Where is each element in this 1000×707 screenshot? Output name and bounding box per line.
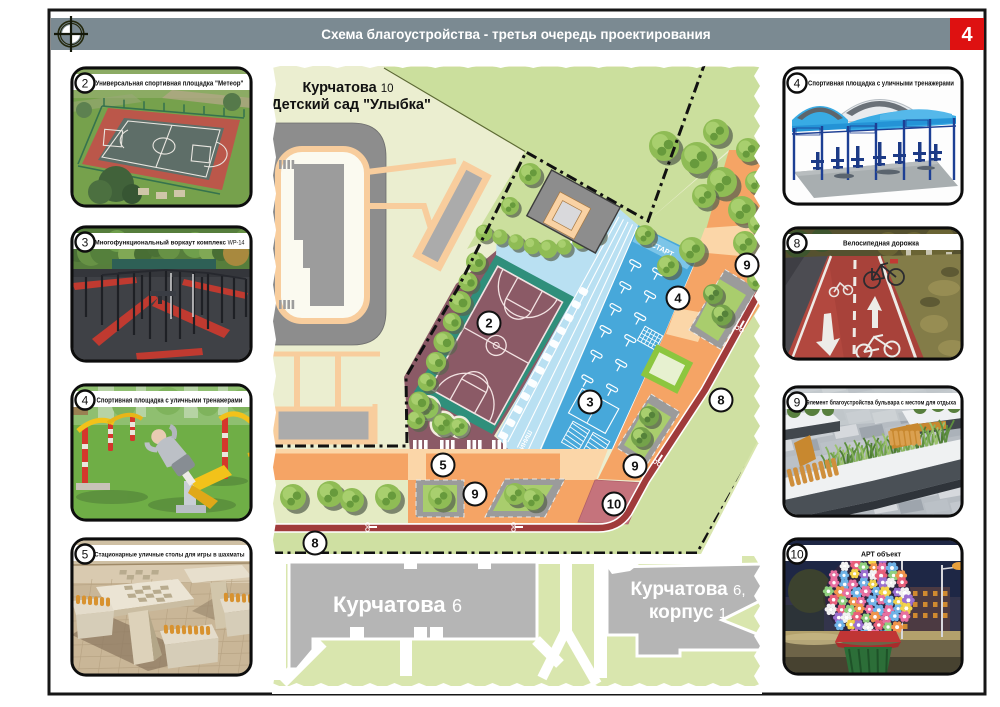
svg-text:4: 4 (794, 77, 801, 91)
svg-text:6: 6 (452, 596, 462, 616)
svg-text:Элемент благоустройства бульва: Элемент благоустройства бульвара с место… (806, 399, 956, 407)
svg-text:3: 3 (82, 236, 89, 250)
svg-text:Курчатова 10: Курчатова 10 (302, 80, 393, 96)
svg-text:4: 4 (82, 394, 89, 408)
svg-text:Курчатова 6,: Курчатова 6, (630, 579, 745, 600)
svg-text:9: 9 (794, 396, 801, 410)
svg-text:9: 9 (471, 487, 478, 502)
svg-text:АРТ объект: АРТ объект (861, 550, 901, 559)
svg-text:корпус 1: корпус 1 (649, 602, 727, 623)
svg-text:Спортивная площадка с уличными: Спортивная площадка с уличными тренажера… (808, 81, 954, 88)
svg-text:Универсальная спортивная площа: Универсальная спортивная площадка "Метео… (96, 81, 244, 88)
svg-text:2: 2 (485, 316, 492, 331)
svg-text:8: 8 (311, 536, 318, 551)
svg-text:3: 3 (586, 395, 593, 410)
svg-text:2: 2 (82, 77, 89, 91)
svg-text:Схема благоустройства - третья: Схема благоустройства - третья очередь п… (321, 27, 710, 42)
svg-text:4: 4 (961, 24, 973, 46)
svg-text:Детский сад "Улыбка": Детский сад "Улыбка" (271, 97, 431, 113)
svg-text:5: 5 (82, 548, 89, 562)
svg-text:Курчатова: Курчатова (333, 592, 446, 617)
svg-text:8: 8 (794, 237, 801, 251)
svg-text:9: 9 (743, 258, 750, 273)
svg-text:Стационарные уличные столы для: Стационарные уличные столы для игры в ша… (95, 552, 245, 559)
svg-text:Велосипедная дорожка: Велосипедная дорожка (843, 239, 920, 248)
svg-text:5: 5 (439, 458, 446, 473)
svg-text:Спортивная площадка с уличными: Спортивная площадка с уличными тренажера… (97, 398, 243, 405)
svg-text:4: 4 (674, 291, 682, 306)
svg-text:10: 10 (790, 548, 804, 562)
svg-text:9: 9 (631, 459, 638, 474)
svg-text:10: 10 (607, 497, 621, 512)
svg-text:Многофункциональный воркаут ко: Многофункциональный воркаут комплекс WP-… (95, 239, 246, 247)
svg-text:8: 8 (717, 393, 724, 408)
